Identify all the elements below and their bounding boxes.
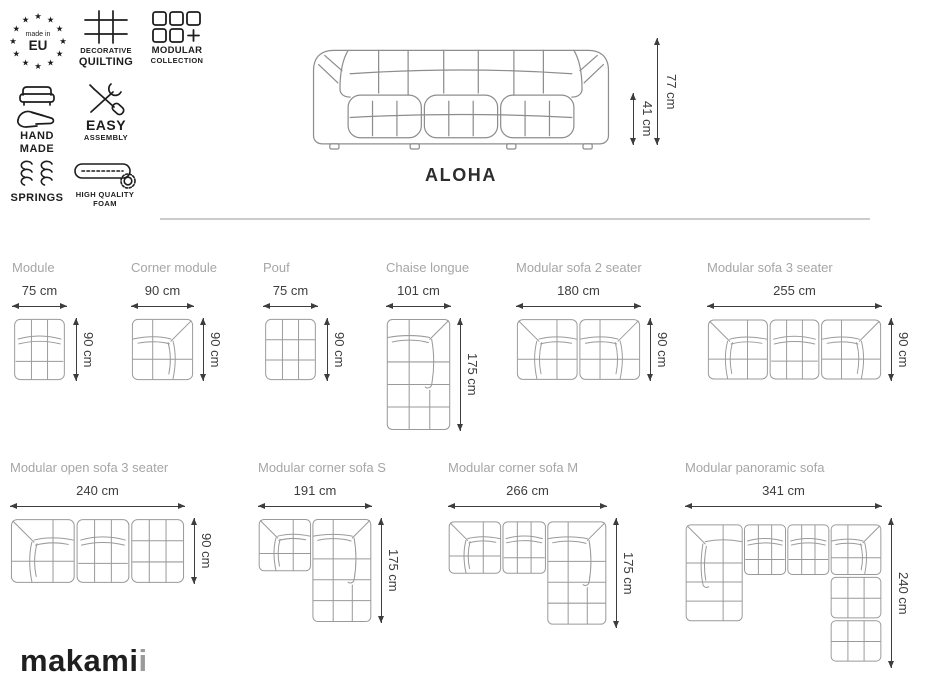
diagram-pouf: Pouf 75 cm 90 cm — [263, 260, 347, 381]
width-dimension: 255 cm — [707, 283, 882, 299]
sofa-2-seater-top-view — [516, 318, 641, 381]
logo-accent: i — [138, 643, 147, 678]
diagram-sofa-3-seater: Modular sofa 3 seater 255 cm 90 cm — [707, 260, 911, 381]
foam-icon — [73, 160, 137, 190]
springs-icon — [14, 160, 60, 192]
badge-label-line2: MADE — [10, 143, 64, 156]
corner-sofa-m-top-view — [448, 518, 607, 628]
svg-text:★: ★ — [56, 49, 64, 59]
height-arrow — [891, 518, 892, 668]
width-dimension: 266 cm — [448, 483, 607, 499]
diagram-title: Module — [12, 260, 96, 276]
svg-text:★: ★ — [12, 24, 20, 34]
height-dimension: 175 cm — [465, 318, 480, 431]
height-dimension: 90 cm — [208, 318, 223, 381]
badge-label-line1: DECORATIVE — [77, 46, 135, 56]
easy-assembly-icon — [81, 82, 131, 118]
svg-text:★: ★ — [56, 24, 64, 34]
svg-text:★: ★ — [47, 14, 55, 24]
diagram-corner-sofa-s: Modular corner sofa S 191 cm 175 cm — [258, 460, 401, 623]
height-dimension: 240 cm — [896, 518, 911, 668]
diagram-panoramic-sofa: Modular panoramic sofa 341 cm 240 cm — [685, 460, 911, 668]
height-arrow — [327, 318, 328, 381]
width-arrow — [516, 306, 641, 307]
corner-module-top-view — [131, 318, 194, 381]
width-dimension: 180 cm — [516, 283, 641, 299]
made-in-text: made in — [26, 31, 51, 38]
diagram-title: Modular sofa 2 seater — [516, 260, 670, 276]
width-arrow — [263, 306, 318, 307]
badge-label-line1: HAND — [10, 130, 64, 143]
makamii-logo: makamii — [20, 643, 148, 679]
chaise-longue-top-view — [386, 318, 451, 431]
badge-springs: SPRINGS — [10, 160, 64, 205]
height-dimension: 175 cm — [386, 518, 401, 623]
svg-text:★: ★ — [59, 36, 67, 46]
badge-easy-assembly: EASY ASSEMBLY — [78, 82, 134, 142]
height-arrow — [891, 318, 892, 381]
diagram-title: Corner module — [131, 260, 223, 276]
badge-label-line2: FOAM — [72, 199, 138, 208]
sofa-3-seater-top-view — [707, 318, 882, 381]
svg-text:★: ★ — [34, 61, 42, 71]
width-dimension: 90 cm — [131, 283, 194, 299]
height-dimension: 90 cm — [896, 318, 911, 381]
diagram-title: Modular open sofa 3 seater — [10, 460, 214, 476]
product-name: ALOHA — [302, 165, 620, 186]
total-height-dimension: 77 cm — [664, 38, 679, 145]
width-arrow — [685, 506, 882, 507]
width-arrow — [131, 306, 194, 307]
quilting-icon — [80, 10, 132, 46]
badge-label-line1: HIGH QUALITY — [72, 190, 138, 199]
badge-decorative-quilting: DECORATIVE QUILTING — [77, 10, 135, 68]
height-arrow — [381, 518, 382, 623]
eu-stars-icon: ★★ ★★ ★★ ★★ ★★ ★★ made in EU — [8, 8, 68, 72]
height-arrow — [194, 518, 195, 584]
pouf-top-view — [263, 318, 318, 381]
diagram-title: Chaise longue — [386, 260, 480, 276]
width-arrow — [386, 306, 451, 307]
width-dimension: 191 cm — [258, 483, 372, 499]
badge-label: SPRINGS — [10, 192, 64, 205]
badge-modular-collection: MODULAR COLLECTION — [148, 10, 206, 65]
width-dimension: 101 cm — [386, 283, 451, 299]
width-dimension: 240 cm — [10, 483, 185, 499]
total-height-arrow — [657, 38, 658, 145]
diagram-corner-sofa-m: Modular corner sofa M 266 cm 175 cm — [448, 460, 636, 628]
diagram-title: Modular sofa 3 seater — [707, 260, 911, 276]
diagram-open-sofa-3-seater: Modular open sofa 3 seater 240 cm 90 cm — [10, 460, 214, 584]
divider — [160, 218, 870, 220]
badge-label-line2: COLLECTION — [148, 56, 206, 65]
width-dimension: 75 cm — [263, 283, 318, 299]
module-top-view — [12, 318, 67, 381]
width-arrow — [448, 506, 607, 507]
badge-label-line2: QUILTING — [77, 56, 135, 68]
hand-made-icon — [12, 82, 62, 130]
height-dimension: 90 cm — [81, 318, 96, 381]
height-arrow — [650, 318, 651, 381]
height-dimension: 90 cm — [332, 318, 347, 381]
width-arrow — [707, 306, 882, 307]
eu-text: EU — [29, 38, 48, 53]
badge-hand-made: HAND MADE — [10, 82, 64, 156]
badge-label-line1: EASY — [78, 118, 134, 133]
svg-text:★: ★ — [22, 58, 30, 68]
logo-main: makami — [20, 643, 138, 678]
svg-text:★: ★ — [9, 36, 17, 46]
badge-high-quality-foam: HIGH QUALITY FOAM — [72, 160, 138, 208]
modular-collection-icon — [151, 10, 203, 46]
corner-sofa-s-top-view — [258, 518, 372, 623]
open-sofa-3-seater-top-view — [10, 518, 185, 584]
height-dimension: 90 cm — [199, 518, 214, 584]
svg-text:★: ★ — [22, 14, 30, 24]
width-arrow — [258, 506, 372, 507]
spec-sheet-page: ★★ ★★ ★★ ★★ ★★ ★★ made in EU DECORATIVE … — [0, 0, 930, 690]
diagram-title: Modular panoramic sofa — [685, 460, 911, 476]
badge-made-in-eu: ★★ ★★ ★★ ★★ ★★ ★★ made in EU — [8, 8, 68, 72]
width-dimension: 341 cm — [685, 483, 882, 499]
height-arrow — [203, 318, 204, 381]
diagram-corner-module: Corner module 90 cm 90 cm — [131, 260, 223, 381]
height-arrow — [460, 318, 461, 431]
width-dimension: 75 cm — [12, 283, 67, 299]
diagram-sofa-2-seater: Modular sofa 2 seater 180 cm 90 cm — [516, 260, 670, 381]
sofa-illustration — [302, 30, 620, 150]
svg-text:★: ★ — [12, 49, 20, 59]
width-arrow — [10, 506, 185, 507]
diagram-chaise-longue: Chaise longue 101 cm 175 cm — [386, 260, 480, 431]
svg-text:★: ★ — [47, 58, 55, 68]
height-arrow — [76, 318, 77, 381]
diagram-title: Modular corner sofa M — [448, 460, 636, 476]
badge-label-line2: ASSEMBLY — [78, 133, 134, 142]
height-arrow — [616, 518, 617, 628]
svg-text:★: ★ — [34, 11, 42, 21]
width-arrow — [12, 306, 67, 307]
panoramic-sofa-top-view — [685, 518, 882, 668]
seat-height-arrow — [633, 93, 634, 145]
height-dimension: 175 cm — [621, 518, 636, 628]
diagram-title: Pouf — [263, 260, 347, 276]
diagram-title: Modular corner sofa S — [258, 460, 401, 476]
diagram-module: Module 75 cm 90 cm — [12, 260, 96, 381]
badge-label-line1: MODULAR — [148, 46, 206, 56]
height-dimension: 90 cm — [655, 318, 670, 381]
